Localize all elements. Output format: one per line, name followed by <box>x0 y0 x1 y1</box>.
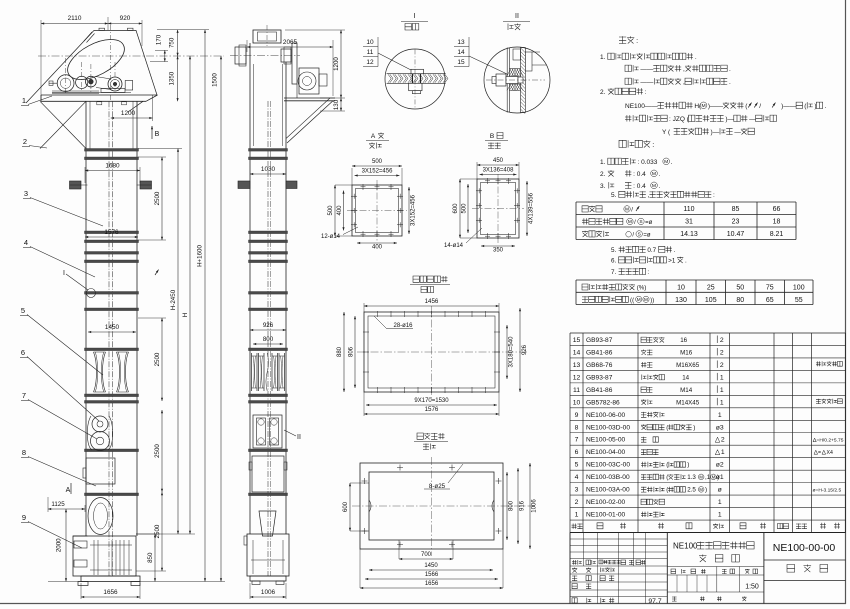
svg-text:/: / <box>759 103 761 110</box>
svg-text:1.: 1. <box>600 159 606 166</box>
svg-text:10: 10 <box>677 285 685 292</box>
svg-text:B: B <box>155 131 160 138</box>
svg-text:ø1: ø1 <box>716 474 724 481</box>
svg-text:600: 600 <box>343 501 349 512</box>
svg-text:18: 18 <box>773 219 781 226</box>
svg-text:GB41-86: GB41-86 <box>586 387 613 394</box>
svg-text:2110: 2110 <box>68 15 82 22</box>
svg-text:15: 15 <box>573 337 581 344</box>
svg-text:GB68-76: GB68-76 <box>586 362 613 369</box>
svg-text:NE100-02-00: NE100-02-00 <box>586 499 626 506</box>
svg-text:II: II <box>515 13 519 20</box>
svg-text:1456: 1456 <box>425 298 439 305</box>
svg-text:: 0.4: : 0.4 <box>633 171 646 178</box>
svg-text:2.: 2. <box>600 89 606 96</box>
svg-text:NE100-03B-00: NE100-03B-00 <box>586 474 630 481</box>
svg-text:M: M <box>699 474 703 479</box>
svg-text:2500: 2500 <box>154 352 161 366</box>
svg-text:1450: 1450 <box>105 324 120 331</box>
svg-text:H: H <box>182 313 189 317</box>
svg-text:880: 880 <box>337 346 343 357</box>
svg-text:80: 80 <box>736 297 744 304</box>
svg-text:350: 350 <box>493 248 504 254</box>
svg-text:——: —— <box>640 66 654 73</box>
svg-text:.: . <box>729 66 731 73</box>
svg-text:2500: 2500 <box>154 191 161 205</box>
svg-text:66: 66 <box>773 206 781 213</box>
svg-text:14: 14 <box>457 49 465 56</box>
svg-text:3X152=456: 3X152=456 <box>411 194 417 226</box>
svg-text:4: 4 <box>24 238 28 247</box>
svg-text:M16: M16 <box>680 349 693 356</box>
svg-text:—: — <box>749 116 756 123</box>
svg-text:M: M <box>652 171 656 177</box>
svg-text:1.: 1. <box>600 54 606 61</box>
svg-text:110: 110 <box>683 206 694 213</box>
svg-text:: 0.4: : 0.4 <box>633 183 646 190</box>
svg-text:1: 1 <box>720 387 724 394</box>
svg-text:500: 500 <box>328 205 334 216</box>
svg-text:8: 8 <box>22 448 26 457</box>
svg-text:11: 11 <box>367 49 374 56</box>
svg-text:1:50: 1:50 <box>745 584 759 591</box>
svg-text:8.21: 8.21 <box>770 231 784 238</box>
svg-text:): ) <box>705 487 707 494</box>
svg-text:X4: X4 <box>827 450 833 456</box>
svg-text:1006: 1006 <box>532 499 538 513</box>
svg-text:100: 100 <box>793 285 805 292</box>
svg-text:170: 170 <box>156 34 163 45</box>
svg-text:)——: )—— <box>708 103 724 110</box>
svg-text:M: M <box>664 159 668 165</box>
svg-text:1450: 1450 <box>424 563 438 569</box>
svg-text:M14: M14 <box>680 387 693 394</box>
svg-text:.: . <box>695 54 697 61</box>
svg-text:S: S <box>638 232 641 238</box>
svg-text:2: 2 <box>23 137 27 146</box>
svg-text::: : <box>636 36 638 45</box>
svg-text:4: 4 <box>575 474 579 481</box>
svg-text:1576: 1576 <box>425 406 439 413</box>
svg-text:1: 1 <box>718 412 722 419</box>
svg-text:ø2: ø2 <box>716 462 724 469</box>
svg-text:10: 10 <box>573 399 581 406</box>
svg-text:NE100——: NE100—— <box>625 103 658 110</box>
svg-text:13: 13 <box>457 39 465 46</box>
svg-text:7: 7 <box>575 437 579 444</box>
svg-text:1: 1 <box>721 449 725 456</box>
svg-text:Y (: Y ( <box>662 129 671 136</box>
svg-text:NE100-03A-00: NE100-03A-00 <box>586 487 630 494</box>
svg-text:M: M <box>699 487 703 492</box>
svg-text:14.13: 14.13 <box>680 231 698 238</box>
svg-text:0.7: 0.7 <box>647 247 656 254</box>
svg-text:S: S <box>639 219 642 225</box>
svg-text:130: 130 <box>333 99 340 110</box>
svg-text:6: 6 <box>21 348 25 357</box>
svg-text:GB93-87: GB93-87 <box>586 337 613 344</box>
svg-text:3X180=540: 3X180=540 <box>509 336 515 368</box>
svg-text:B: B <box>490 133 494 140</box>
svg-text:500: 500 <box>461 203 467 214</box>
svg-text:1200: 1200 <box>333 57 340 71</box>
svg-text:1006: 1006 <box>261 589 276 596</box>
svg-text:1200: 1200 <box>121 110 136 117</box>
svg-text:2000: 2000 <box>56 538 63 552</box>
svg-text:9: 9 <box>575 412 579 419</box>
svg-text:1500: 1500 <box>212 73 219 87</box>
svg-text:23: 23 <box>732 219 740 226</box>
svg-text:2: 2 <box>575 499 579 506</box>
svg-text:5: 5 <box>575 462 579 469</box>
svg-text:1125: 1125 <box>51 501 65 508</box>
svg-text:NE100-03C-00: NE100-03C-00 <box>586 462 630 469</box>
svg-text:9X170=1530: 9X170=1530 <box>414 398 449 404</box>
svg-text::: : <box>713 192 715 199</box>
svg-text:926: 926 <box>263 322 274 329</box>
svg-text:926: 926 <box>522 344 528 355</box>
svg-text:97.7: 97.7 <box>648 598 661 605</box>
svg-text:NE100-00-00: NE100-00-00 <box>773 542 836 554</box>
svg-text:3: 3 <box>575 487 579 494</box>
svg-text:NE100-06-00: NE100-06-00 <box>586 412 626 419</box>
svg-text:(%): (%) <box>637 285 647 292</box>
svg-text:=H/0.2+5.75: =H/0.2+5.75 <box>817 438 844 444</box>
svg-text::: : <box>645 89 647 96</box>
svg-text:——: —— <box>640 79 654 86</box>
svg-text:.: . <box>825 103 827 110</box>
svg-text:,: , <box>683 79 685 86</box>
svg-text:450: 450 <box>493 158 504 164</box>
svg-text:1656: 1656 <box>103 589 118 596</box>
svg-text:700: 700 <box>421 552 432 558</box>
svg-text:25: 25 <box>707 285 715 292</box>
svg-text:1: 1 <box>720 399 724 406</box>
svg-text::: : <box>652 140 654 149</box>
svg-text:ø3: ø3 <box>716 424 724 431</box>
svg-text:: JZQ (: : JZQ ( <box>669 116 690 123</box>
svg-text:.: . <box>685 258 687 265</box>
svg-text:/: / <box>631 207 633 214</box>
svg-text:800: 800 <box>263 336 274 343</box>
svg-text:12-ø14: 12-ø14 <box>321 234 341 240</box>
svg-text:1: 1 <box>718 512 722 519</box>
svg-text:.: . <box>658 183 660 190</box>
svg-text:1576: 1576 <box>104 229 119 236</box>
svg-text:1: 1 <box>720 374 724 381</box>
svg-text:50: 50 <box>736 285 744 292</box>
svg-text:14-ø14: 14-ø14 <box>444 243 464 249</box>
svg-text:=: = <box>818 450 821 456</box>
svg-text:750: 750 <box>168 37 175 48</box>
svg-text:31: 31 <box>685 219 693 226</box>
svg-text:I: I <box>63 270 65 277</box>
svg-text:14: 14 <box>573 349 581 356</box>
svg-text:NE100-04-00: NE100-04-00 <box>586 449 626 456</box>
svg-text:1566: 1566 <box>425 572 439 578</box>
svg-text:800: 800 <box>509 500 515 511</box>
svg-text:3X136=408: 3X136=408 <box>483 168 515 174</box>
svg-text:NE100-05-00: NE100-05-00 <box>586 437 626 444</box>
svg-text:A: A <box>371 133 376 140</box>
svg-text:55: 55 <box>795 297 803 304</box>
svg-text:2.: 2. <box>600 171 606 178</box>
svg-text:4X139=556: 4X139=556 <box>529 192 535 224</box>
svg-text:1: 1 <box>22 96 26 105</box>
svg-text:3: 3 <box>24 189 28 198</box>
svg-text:16: 16 <box>680 337 687 344</box>
svg-text:5.: 5. <box>611 192 617 199</box>
svg-text:H-2450: H-2450 <box>170 289 177 310</box>
svg-text:920: 920 <box>120 15 131 22</box>
svg-text:75: 75 <box>766 285 774 292</box>
svg-text:1680: 1680 <box>105 163 120 170</box>
svg-text:H+1600: H+1600 <box>196 245 203 267</box>
svg-text:2.5: 2.5 <box>687 487 696 494</box>
svg-text:)—: )— <box>711 129 720 136</box>
svg-text:2: 2 <box>720 349 724 356</box>
svg-text:10.47: 10.47 <box>727 231 745 238</box>
svg-text:500: 500 <box>372 159 383 165</box>
svg-text:15: 15 <box>457 59 465 66</box>
svg-text:=ø: =ø <box>645 220 653 226</box>
svg-text:400: 400 <box>337 205 343 216</box>
svg-text:: 0.033: : 0.033 <box>637 159 657 166</box>
svg-text:6.: 6. <box>611 258 617 265</box>
svg-text:7.: 7. <box>611 269 617 276</box>
svg-text:M: M <box>644 297 648 302</box>
svg-text:)—: )— <box>725 116 734 123</box>
svg-text:,: , <box>648 192 650 199</box>
svg-text:1.3: 1.3 <box>687 474 696 481</box>
svg-text:.: . <box>658 171 660 178</box>
svg-text:): ) <box>693 424 695 431</box>
svg-text:II: II <box>297 434 301 441</box>
svg-text:916: 916 <box>520 500 526 511</box>
svg-text:850: 850 <box>147 552 154 563</box>
svg-text:A: A <box>66 487 71 494</box>
svg-text::: : <box>647 269 649 276</box>
svg-text:2: 2 <box>720 362 724 369</box>
svg-text:=ø: =ø <box>643 233 651 239</box>
svg-text:NE100-01-00: NE100-01-00 <box>586 512 626 519</box>
svg-text:.: . <box>670 159 672 166</box>
svg-text:2: 2 <box>720 337 724 344</box>
svg-text:M: M <box>625 207 629 213</box>
svg-text:2: 2 <box>721 437 725 444</box>
svg-text:NE100: NE100 <box>673 542 698 551</box>
svg-text:11: 11 <box>573 387 580 394</box>
svg-text:—: — <box>734 129 741 136</box>
svg-text:1: 1 <box>718 499 722 506</box>
svg-text:M: M <box>652 183 656 189</box>
svg-text:1: 1 <box>575 512 579 519</box>
svg-text:GB41-86: GB41-86 <box>586 349 613 356</box>
svg-text:12: 12 <box>366 59 374 66</box>
svg-text:M16X65: M16X65 <box>676 362 700 369</box>
svg-text:NE100-03D-00: NE100-03D-00 <box>586 424 630 431</box>
svg-text:105: 105 <box>705 297 717 304</box>
svg-text:,1: ,1 <box>705 474 711 481</box>
svg-text:1656: 1656 <box>425 581 439 587</box>
svg-text:GB93-87: GB93-87 <box>586 374 613 381</box>
svg-text:M: M <box>637 297 641 302</box>
svg-text:,: , <box>683 66 685 73</box>
svg-text:10: 10 <box>366 39 374 46</box>
svg-text:): ) <box>687 462 689 469</box>
svg-text:7: 7 <box>22 391 26 400</box>
svg-text:I: I <box>414 13 416 20</box>
svg-text:400: 400 <box>372 245 383 251</box>
svg-text:600: 600 <box>453 203 459 214</box>
svg-text:12: 12 <box>573 374 581 381</box>
svg-text:1350: 1350 <box>168 71 175 85</box>
svg-text:)): )) <box>650 297 654 304</box>
svg-text:14: 14 <box>682 374 689 381</box>
svg-text:5.: 5. <box>611 247 617 254</box>
svg-text:3.: 3. <box>600 183 606 190</box>
svg-text:)——: )—— <box>781 103 797 110</box>
svg-text:M: M <box>701 103 705 109</box>
svg-text:>1: >1 <box>668 258 676 265</box>
svg-text:85: 85 <box>732 206 740 213</box>
svg-text:1030: 1030 <box>261 166 276 173</box>
svg-text:8: 8 <box>575 424 579 431</box>
svg-text:5: 5 <box>21 306 25 315</box>
svg-text:ø: ø <box>718 487 722 494</box>
svg-text:.: . <box>674 247 676 254</box>
svg-text:130: 130 <box>675 297 687 304</box>
svg-text:ø=H-3.15/2.5: ø=H-3.15/2.5 <box>813 488 842 494</box>
svg-text:M: M <box>628 219 632 225</box>
svg-text:65: 65 <box>766 297 774 304</box>
svg-text:M14X45: M14X45 <box>676 399 700 406</box>
svg-text:3X152=456: 3X152=456 <box>362 169 394 175</box>
svg-text:13: 13 <box>573 362 581 369</box>
svg-text:6: 6 <box>575 449 579 456</box>
svg-text:GB5782-86: GB5782-86 <box>586 399 620 406</box>
svg-text:9: 9 <box>22 513 26 522</box>
svg-text:.: . <box>729 79 731 86</box>
svg-text:2500: 2500 <box>154 444 161 458</box>
svg-text:28-ø16: 28-ø16 <box>393 323 413 329</box>
svg-text:806: 806 <box>348 346 354 357</box>
